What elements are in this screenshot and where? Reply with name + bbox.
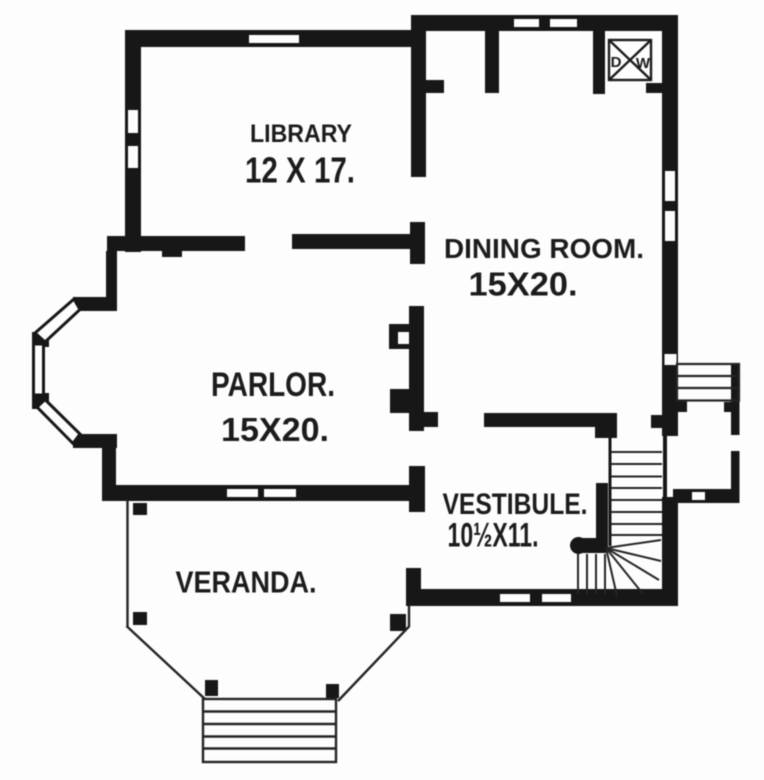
svg-text:10½X11.: 10½X11. — [448, 517, 539, 555]
svg-text:15X20.: 15X20. — [221, 411, 329, 448]
svg-text:D: D — [611, 54, 622, 71]
svg-text:12 X 17.: 12 X 17. — [245, 150, 355, 191]
svg-text:DINING ROOM.: DINING ROOM. — [444, 233, 644, 264]
svg-text:W: W — [636, 55, 651, 72]
svg-text:PARLOR.: PARLOR. — [211, 366, 335, 404]
svg-text:LIBRARY: LIBRARY — [250, 120, 352, 148]
svg-text:VERANDA.: VERANDA. — [176, 565, 317, 600]
svg-text:15X20.: 15X20. — [469, 266, 578, 303]
